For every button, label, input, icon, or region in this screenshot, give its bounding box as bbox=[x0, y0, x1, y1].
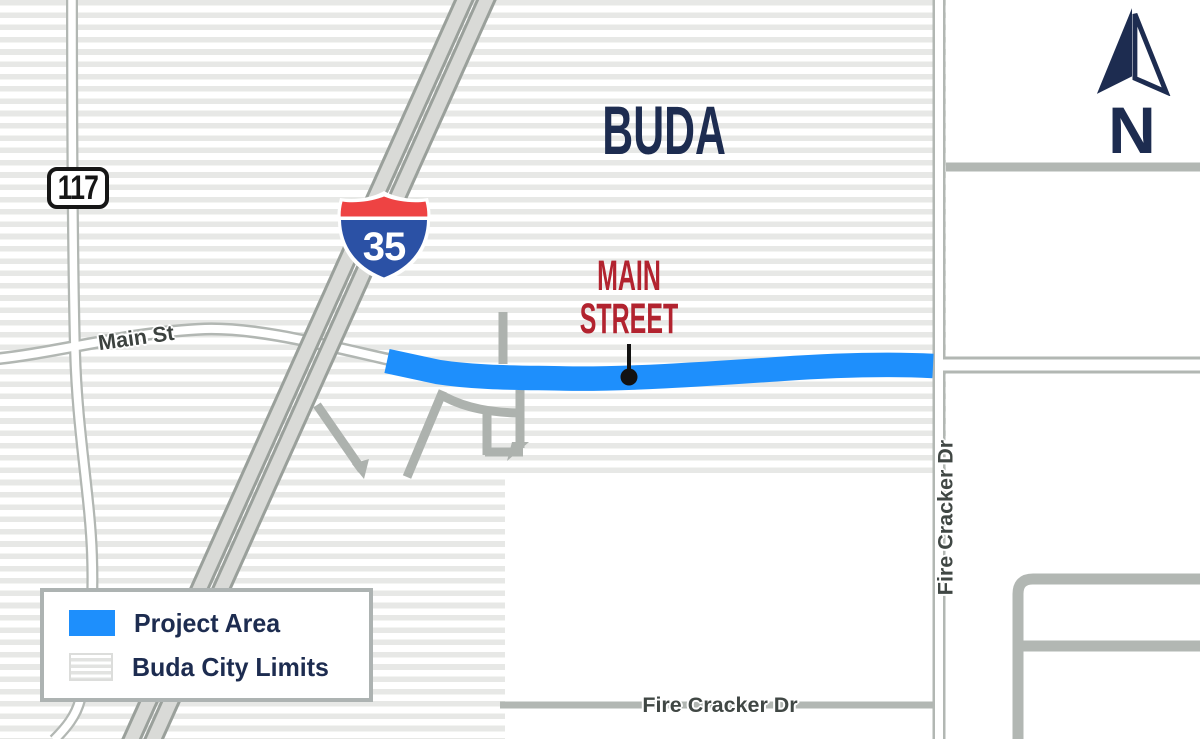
legend-row-project-area: Project Area bbox=[69, 608, 369, 639]
main-street-callout: MAIN STREET bbox=[576, 255, 682, 341]
north-arrow-icon bbox=[1093, 6, 1171, 96]
city-limits-swatch bbox=[69, 653, 113, 681]
interstate-number: 35 bbox=[363, 225, 406, 269]
state-highway-number: 117 bbox=[58, 169, 98, 208]
state-highway-117-badge: 117 bbox=[47, 167, 109, 209]
callout-line-2: STREET bbox=[576, 298, 682, 341]
callout-leader bbox=[621, 344, 638, 386]
fire-cracker-dr-side-label: Fire Cracker Dr bbox=[934, 413, 959, 623]
legend: Project Area Buda City Limits bbox=[40, 588, 373, 702]
project-area-band bbox=[387, 361, 933, 379]
legend-row-city-limits: Buda City Limits bbox=[69, 652, 369, 683]
local-streets bbox=[317, 312, 523, 477]
legend-label: Buda City Limits bbox=[132, 652, 329, 683]
interstate-35-shield-icon: 35 bbox=[334, 187, 434, 282]
project-area-swatch bbox=[69, 610, 115, 636]
north-indicator: N bbox=[1086, 6, 1178, 155]
city-name-label: BUDA bbox=[602, 102, 707, 160]
map-canvas: BUDA MAIN STREET Main St Fire Cracker Dr… bbox=[0, 0, 1200, 739]
north-letter: N bbox=[1086, 105, 1178, 155]
fire-cracker-dr-bottom-label: Fire Cracker Dr bbox=[630, 693, 810, 718]
callout-line-1: MAIN bbox=[576, 255, 682, 298]
legend-label: Project Area bbox=[134, 608, 280, 639]
